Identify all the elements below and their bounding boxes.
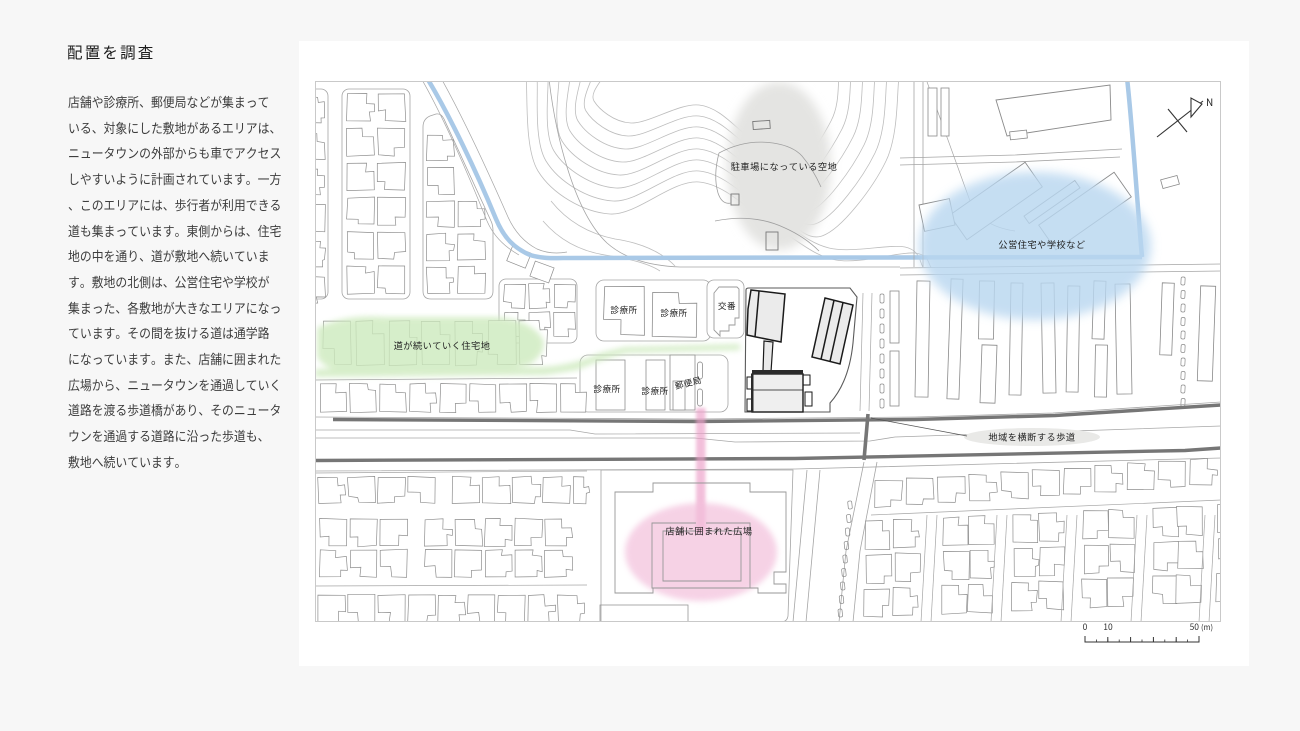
svg-text:(m): (m) — [1201, 622, 1213, 633]
svg-text:50: 50 — [1190, 621, 1200, 633]
svg-text:N: N — [1206, 94, 1213, 109]
svg-text:地域を横断する歩道: 地域を横断する歩道 — [988, 430, 1075, 444]
svg-text:公営住宅や学校など: 公営住宅や学校など — [998, 237, 1085, 251]
svg-text:診療所: 診療所 — [660, 307, 687, 319]
svg-text:診療所: 診療所 — [610, 304, 637, 316]
svg-text:10: 10 — [1103, 621, 1113, 633]
svg-text:道が続いていく住宅地: 道が続いていく住宅地 — [394, 338, 491, 352]
svg-text:0: 0 — [1083, 621, 1088, 633]
svg-text:店舗に囲まれた広場: 店舗に囲まれた広場 — [665, 524, 752, 538]
svg-text:交番: 交番 — [718, 300, 736, 312]
svg-text:診療所: 診療所 — [593, 383, 620, 395]
svg-text:診療所: 診療所 — [641, 385, 668, 397]
svg-text:駐車場になっている空地: 駐車場になっている空地 — [731, 159, 838, 173]
